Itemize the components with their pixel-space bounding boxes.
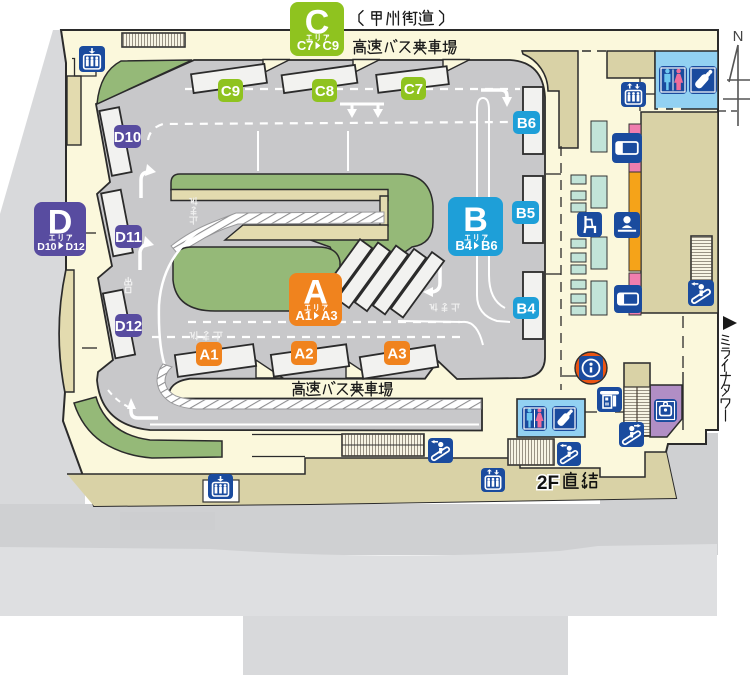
svg-text:A1: A1 — [295, 308, 312, 323]
svg-text:D11: D11 — [115, 229, 142, 246]
svg-text:N: N — [733, 28, 744, 45]
svg-text:D12: D12 — [115, 318, 143, 335]
svg-text:A2: A2 — [294, 345, 313, 362]
svg-text:B4: B4 — [455, 238, 472, 253]
svg-text:C9: C9 — [323, 38, 340, 53]
svg-text:C7: C7 — [297, 38, 314, 53]
svg-text:B6: B6 — [517, 115, 536, 132]
svg-text:A1: A1 — [199, 346, 218, 363]
svg-text:D10: D10 — [37, 241, 56, 253]
svg-text:A: A — [303, 274, 328, 312]
svg-text:B6: B6 — [481, 238, 498, 253]
svg-text:C8: C8 — [315, 83, 334, 100]
svg-text:C9: C9 — [221, 83, 240, 100]
svg-text:B5: B5 — [516, 205, 535, 222]
svg-text:A3: A3 — [321, 308, 338, 323]
svg-text:B4: B4 — [516, 300, 536, 317]
svg-text:A3: A3 — [387, 345, 406, 362]
svg-text:C7: C7 — [404, 81, 423, 98]
svg-text:D12: D12 — [66, 241, 85, 253]
svg-text:2F: 2F — [537, 473, 559, 494]
svg-text:D10: D10 — [114, 129, 142, 146]
svg-text:B: B — [463, 201, 488, 239]
